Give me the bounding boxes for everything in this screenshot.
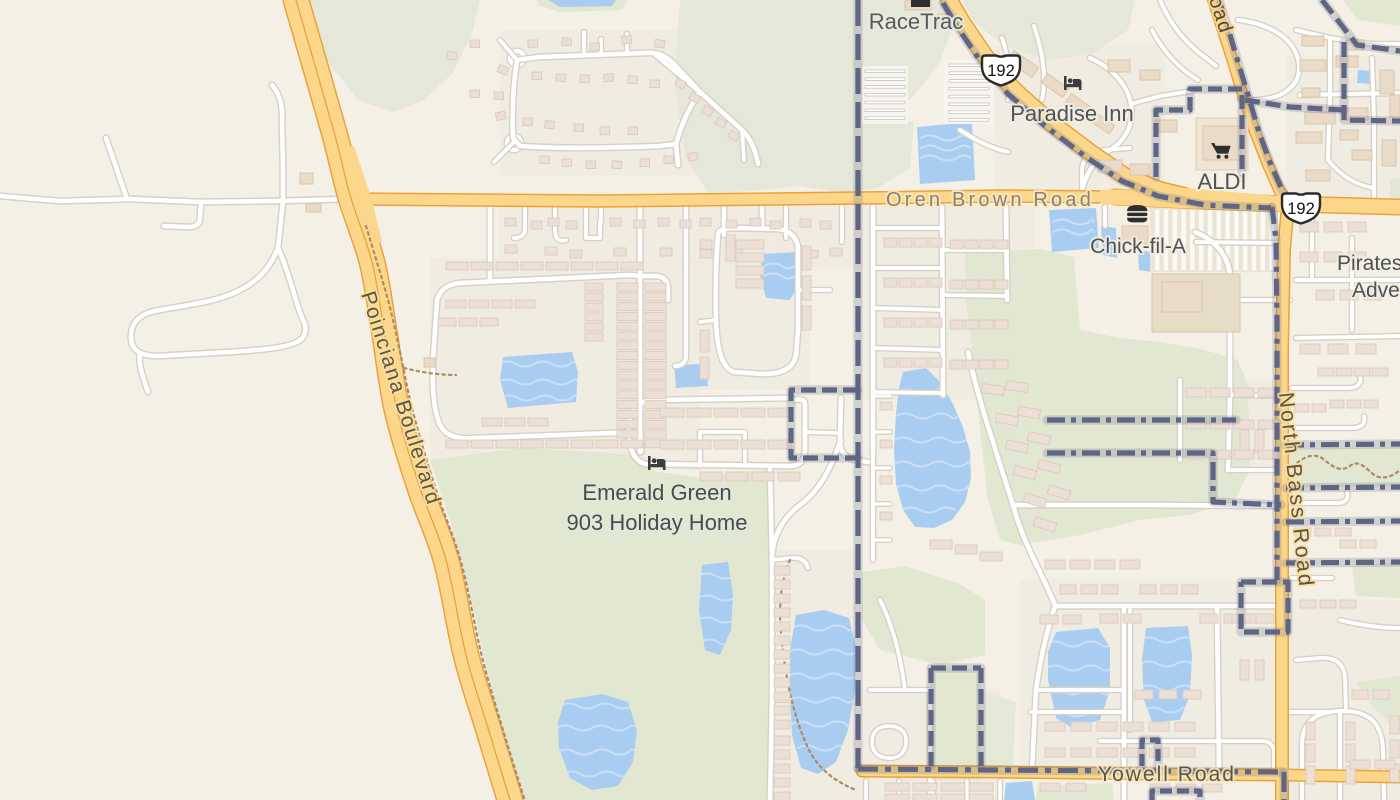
svg-text:Pirates: Pirates — [1337, 252, 1400, 275]
svg-text:Paradise Inn: Paradise Inn — [1010, 101, 1134, 126]
svg-text:Oren Brown Road: Oren Brown Road — [886, 189, 1094, 211]
svg-text:Chick-fil-A: Chick-fil-A — [1090, 235, 1186, 258]
svg-text:Emerald Green: Emerald Green — [582, 480, 731, 505]
svg-text:903 Holiday Home: 903 Holiday Home — [567, 510, 748, 535]
svg-text:Adventure: Adventure — [1352, 279, 1400, 302]
svg-text:192: 192 — [987, 62, 1015, 80]
svg-text:RaceTrac: RaceTrac — [869, 9, 964, 34]
svg-text:Yowell Road: Yowell Road — [1098, 763, 1236, 786]
svg-text:192: 192 — [1287, 200, 1315, 218]
svg-text:ALDI: ALDI — [1198, 169, 1247, 194]
